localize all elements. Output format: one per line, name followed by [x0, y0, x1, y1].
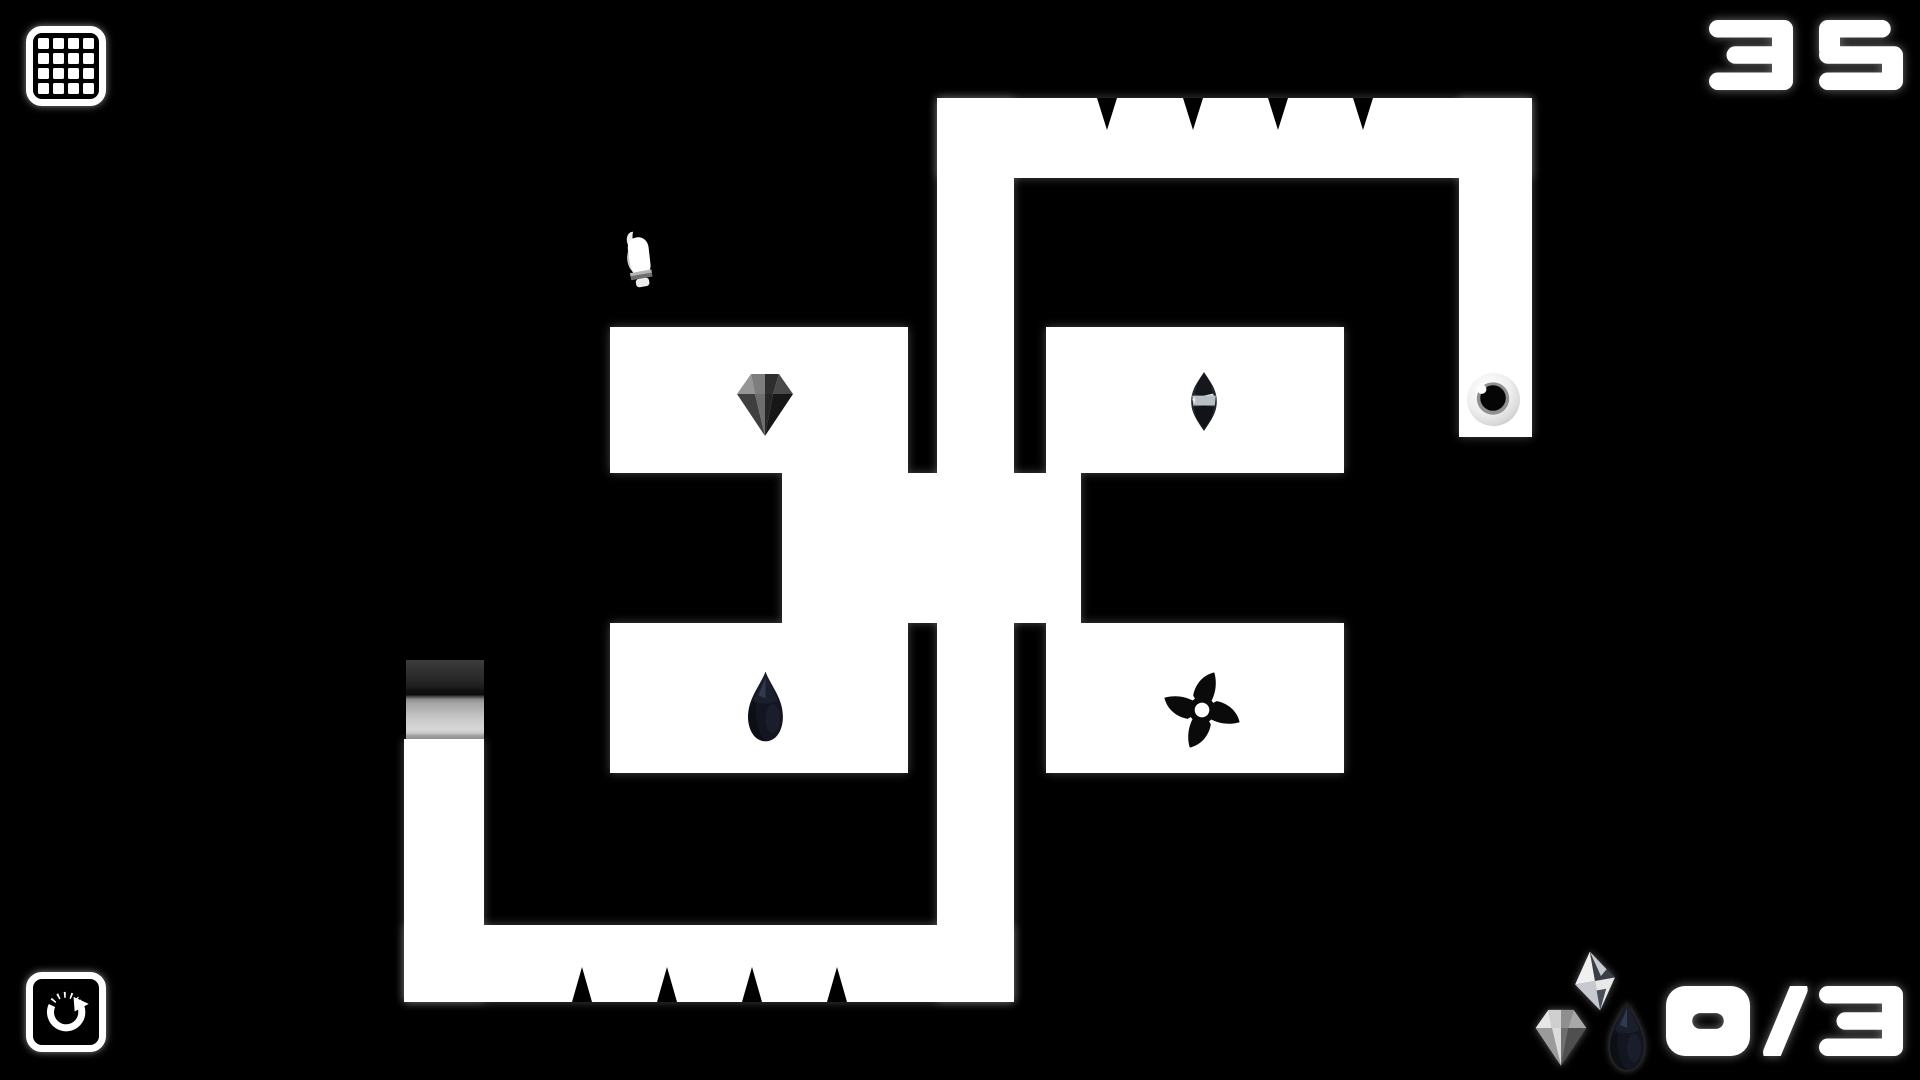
- grid-cell: [83, 53, 94, 64]
- ceiling-spike: [1353, 98, 1373, 130]
- grid-icon: [38, 38, 94, 94]
- glyph-3: [1709, 20, 1793, 90]
- hand-icon: [618, 228, 660, 290]
- game-screen: [0, 0, 1920, 1080]
- grid-cell: [83, 68, 94, 79]
- grid-cell: [68, 68, 79, 79]
- teardrop-gem-icon: [1606, 998, 1648, 1074]
- restart-button[interactable]: [26, 972, 106, 1052]
- floor-spike: [827, 967, 847, 1002]
- marquise-gem: [1186, 370, 1222, 433]
- grid-cell: [83, 38, 94, 49]
- center-corridor: [782, 473, 1081, 623]
- ceiling-spike: [1097, 98, 1117, 130]
- hud-gem-teardrop: [1606, 998, 1648, 1074]
- hud-gem-diamond: [1532, 1005, 1590, 1069]
- grid-cell: [38, 38, 49, 49]
- bottom-bar: [404, 925, 1014, 1002]
- grid-cell: [38, 53, 49, 64]
- grid-cell: [53, 68, 64, 79]
- goal-orb-icon: [1466, 372, 1521, 427]
- floor-spike: [657, 967, 677, 1002]
- glyph-slash: [1760, 986, 1809, 1056]
- grid-cell: [38, 83, 49, 94]
- teardrop-gem: [744, 669, 787, 744]
- diamond-gem-icon: [1532, 1005, 1590, 1069]
- grid-cell: [53, 38, 64, 49]
- grid-cell: [83, 83, 94, 94]
- marquise-gem-icon: [1186, 370, 1222, 433]
- ceiling-spike: [1183, 98, 1203, 130]
- floor-spike: [572, 967, 592, 1002]
- restart-arrow-icon: [39, 985, 93, 1039]
- gem-counter: [1666, 986, 1903, 1056]
- grid-cell: [68, 53, 79, 64]
- shuriken-trap: [1159, 667, 1245, 753]
- ceiling-spike: [1268, 98, 1288, 130]
- goal-orb: [1466, 372, 1521, 427]
- grid-cell: [68, 38, 79, 49]
- diamond-gem-icon: [733, 368, 797, 440]
- level-select-button[interactable]: [26, 26, 106, 106]
- gradient-door: [406, 660, 484, 739]
- glyph-5: [1819, 20, 1903, 90]
- diamond-gem: [733, 368, 797, 440]
- grid-cell: [53, 83, 64, 94]
- playfield[interactable]: [0, 0, 1920, 1080]
- shuriken-icon: [1159, 667, 1245, 753]
- glyph-0: [1666, 986, 1750, 1056]
- floor-spike: [742, 967, 762, 1002]
- glyph-3: [1819, 986, 1903, 1056]
- teardrop-gem-icon: [744, 669, 787, 744]
- grid-cell: [38, 68, 49, 79]
- grid-cell: [53, 53, 64, 64]
- grid-cell: [68, 83, 79, 94]
- player-hand: [618, 228, 660, 290]
- level-number: [1709, 20, 1903, 90]
- top-bar: [937, 98, 1532, 178]
